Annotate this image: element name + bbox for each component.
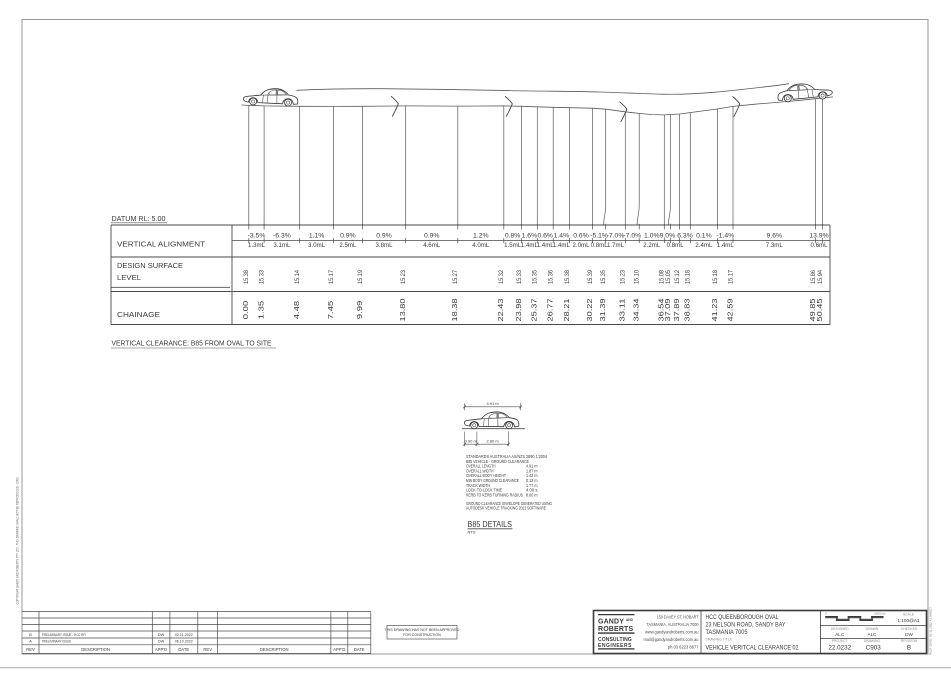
svg-text:2.4mL: 2.4mL (695, 242, 712, 249)
svg-text:CHECKED: CHECKED (901, 627, 918, 631)
svg-text:38.83: 38.83 (683, 298, 692, 321)
svg-text:1.5mL: 1.5mL (504, 242, 521, 249)
svg-text:DRAWN: DRAWN (866, 627, 879, 631)
svg-text:41.23: 41.23 (710, 298, 719, 321)
svg-text:DESIGNED: DESIGNED (831, 627, 849, 631)
svg-text:0.9%: 0.9% (424, 233, 440, 240)
svg-text:1.0%: 1.0% (644, 233, 660, 240)
svg-text:22.0232: 22.0232 (828, 644, 851, 651)
svg-text:ENGINEERS: ENGINEERS (598, 643, 632, 649)
svg-text:0.1%: 0.1% (696, 233, 712, 240)
svg-text:31.39: 31.39 (598, 299, 607, 322)
svg-text:15.05: 15.05 (665, 270, 672, 284)
svg-text:15.35: 15.35 (532, 270, 539, 284)
svg-text:CONSULTING: CONSULTING (598, 637, 632, 643)
svg-text:THIS DRAWING HAS NOT BEEN APPR: THIS DRAWING HAS NOT BEEN APPROVED (385, 628, 460, 632)
svg-text:www.gandyandroberts.com.au: www.gandyandroberts.com.au (645, 629, 699, 634)
svg-text:VERTICAL ALIGNMENT: VERTICAL ALIGNMENT (117, 242, 206, 249)
svg-text:-1.4%: -1.4% (716, 233, 734, 240)
svg-text:15.33: 15.33 (516, 270, 523, 284)
svg-text:15.23: 15.23 (620, 270, 627, 284)
svg-text:37.89: 37.89 (672, 299, 681, 322)
svg-text:0.9%: 0.9% (376, 233, 392, 240)
svg-text:15.32: 15.32 (498, 270, 505, 284)
svg-text:0.6mL: 0.6mL (811, 242, 828, 249)
svg-text:8.00 m: 8.00 m (526, 492, 538, 497)
svg-text:NTS: NTS (468, 529, 476, 534)
svg-text:0.8%: 0.8% (505, 233, 521, 240)
svg-text:B85 DETAILS: B85 DETAILS (468, 520, 513, 529)
svg-text:1.3mL: 1.3mL (248, 242, 265, 249)
svg-text:2.0mL: 2.0mL (573, 242, 590, 249)
svg-text:TASMANIA, AUSTRALIA 7000: TASMANIA, AUSTRALIA 7000 (647, 622, 700, 627)
svg-text:FOR CONSTRUCTION: FOR CONSTRUCTION (403, 633, 441, 637)
svg-text:5000mm: 5000mm (874, 612, 886, 616)
svg-text:26.77: 26.77 (546, 298, 555, 321)
svg-text:PLOT DATE: 02.11.2022 A1 SHEE: PLOT DATE: 02.11.2022 A1 SHEET (929, 607, 933, 655)
svg-text:30.22: 30.22 (585, 299, 594, 322)
svg-text:15.19: 15.19 (357, 270, 364, 284)
svg-text:DESCRIPTION: DESCRIPTION (260, 647, 289, 652)
svg-text:PRELIMINARY ISSUE - HCC RFI: PRELIMINARY ISSUE - HCC RFI (42, 633, 86, 637)
svg-text:15.38: 15.38 (243, 270, 250, 284)
svg-text:ROBERTS: ROBERTS (598, 626, 633, 633)
svg-text:DATE: DATE (178, 647, 189, 652)
svg-text:2.5mL: 2.5mL (339, 242, 356, 249)
svg-text:15.17: 15.17 (727, 270, 734, 284)
svg-text:REV: REV (26, 647, 35, 652)
svg-text:1.7mL: 1.7mL (607, 242, 624, 249)
svg-text:4.91 m: 4.91 m (486, 401, 499, 406)
svg-text:1.4%: 1.4% (554, 233, 570, 240)
svg-text:6.3%: 6.3% (677, 233, 693, 240)
svg-text:VERTICAL CLEARANCE: B85 FROM O: VERTICAL CLEARANCE: B85 FROM OVAL TO SIT… (112, 339, 272, 348)
svg-text:1.4mL: 1.4mL (521, 242, 538, 249)
svg-text:06.10.2022: 06.10.2022 (175, 640, 193, 644)
svg-text:1.4mL: 1.4mL (553, 242, 570, 249)
svg-text:GANDY: GANDY (598, 618, 624, 625)
svg-text:ph 03 6223 8877: ph 03 6223 8877 (668, 644, 699, 649)
svg-text:15.10: 15.10 (634, 270, 641, 284)
svg-text:1.6%: 1.6% (522, 233, 538, 240)
svg-text:-7.0%: -7.0% (623, 233, 641, 240)
svg-text:1.2%: 1.2% (473, 233, 489, 240)
svg-text:9.99: 9.99 (355, 301, 364, 319)
svg-text:LEVEL: LEVEL (117, 275, 141, 282)
svg-text:DATUM RL: 5.00: DATUM RL: 5.00 (112, 216, 166, 223)
svg-text:DW: DW (158, 633, 165, 637)
svg-text:APP'D: APP'D (155, 647, 167, 652)
svg-text:4.6mL: 4.6mL (423, 242, 440, 249)
svg-text:159 DAVEY ST, HOBART: 159 DAVEY ST, HOBART (657, 614, 699, 619)
svg-text:2.80 m: 2.80 m (486, 439, 499, 444)
svg-text:1.1%: 1.1% (309, 233, 325, 240)
svg-text:2.2mL: 2.2mL (643, 242, 660, 249)
svg-text:mail@gandyandroberts.com.au: mail@gandyandroberts.com.au (644, 637, 700, 642)
svg-text:ALC: ALC (868, 632, 878, 637)
svg-text:APP'D: APP'D (333, 647, 345, 652)
svg-text:15.27: 15.27 (452, 270, 459, 284)
svg-text:SCALE: SCALE (903, 612, 915, 616)
svg-text:0.00: 0.00 (241, 301, 250, 319)
svg-text:15.36: 15.36 (548, 270, 555, 284)
svg-text:28.21: 28.21 (562, 299, 571, 322)
svg-text:AUTODESK VEHICLE TRACKING 2021: AUTODESK VEHICLE TRACKING 2021 SOFTWARE (466, 506, 546, 511)
svg-text:DESIGN SURFACE: DESIGN SURFACE (117, 263, 183, 270)
svg-text:15.23: 15.23 (400, 270, 407, 284)
svg-text:13.80: 13.80 (398, 299, 407, 322)
svg-text:23 NELSON ROAD, SANDY BAY: 23 NELSON ROAD, SANDY BAY (706, 622, 786, 629)
svg-text:22.43: 22.43 (496, 299, 505, 322)
svg-text:-5.1%: -5.1% (590, 233, 608, 240)
svg-text:50.45: 50.45 (815, 299, 824, 322)
svg-text:18.38: 18.38 (450, 298, 459, 321)
svg-text:23.98: 23.98 (514, 298, 523, 321)
svg-text:15.39: 15.39 (587, 270, 594, 284)
svg-text:B: B (907, 644, 911, 651)
svg-text:C903: C903 (866, 644, 882, 651)
svg-text:PROJECT: PROJECT (832, 639, 848, 643)
svg-text:15.38: 15.38 (564, 270, 571, 284)
svg-text:3.0mL: 3.0mL (308, 242, 325, 249)
svg-text:15.35: 15.35 (600, 270, 607, 284)
svg-text:7.45: 7.45 (326, 301, 335, 319)
svg-text:ALC: ALC (835, 632, 845, 637)
svg-text:34.34: 34.34 (632, 299, 641, 322)
svg-text:DRAWING TITLE: DRAWING TITLE (706, 638, 733, 642)
svg-text:-7.0%: -7.0% (607, 233, 625, 240)
svg-text:0.6%: 0.6% (573, 233, 589, 240)
svg-text:COPYRIGHT GANDY AND ROBERTS PT: COPYRIGHT GANDY AND ROBERTS PTY LTD - TH… (16, 477, 20, 604)
svg-text:4.48: 4.48 (292, 301, 301, 319)
svg-text:KERB TO KERB TURNING RADIUS: KERB TO KERB TURNING RADIUS (466, 492, 523, 497)
svg-text:13.9%: 13.9% (809, 233, 828, 240)
svg-text:PRELIMINARY ISSUE: PRELIMINARY ISSUE (42, 640, 71, 644)
svg-text:25.37: 25.37 (530, 298, 539, 321)
svg-text:15.33: 15.33 (259, 270, 266, 284)
svg-text:TASMANIA 7005: TASMANIA 7005 (706, 629, 749, 636)
svg-text:DW: DW (905, 632, 913, 637)
svg-text:B: B (29, 633, 32, 637)
svg-text:VEHICLE VERITCAL CLEARANCE 02: VEHICLE VERITCAL CLEARANCE 02 (706, 644, 800, 651)
svg-text:AND: AND (626, 618, 634, 622)
svg-text:02.11.2022: 02.11.2022 (175, 633, 193, 637)
svg-text:HCC QUEENBOROUGH OVAL: HCC QUEENBOROUGH OVAL (706, 614, 780, 621)
svg-text:37.09: 37.09 (663, 299, 672, 322)
svg-text:0.90 m: 0.90 m (465, 439, 478, 444)
svg-text:15.12: 15.12 (674, 270, 681, 284)
svg-text:4.0mL: 4.0mL (472, 242, 489, 249)
svg-text:1.4mL: 1.4mL (537, 242, 554, 249)
svg-text:-3.5%: -3.5% (248, 233, 266, 240)
svg-text:42.59: 42.59 (725, 299, 734, 322)
svg-text:15.18: 15.18 (685, 270, 692, 284)
svg-text:15.17: 15.17 (328, 270, 335, 284)
svg-text:DATE: DATE (354, 647, 365, 652)
svg-text:1:100@A1: 1:100@A1 (897, 618, 920, 623)
svg-text:3.8mL: 3.8mL (376, 242, 393, 249)
svg-text:7.3mL: 7.3mL (766, 242, 783, 249)
svg-text:3.1mL: 3.1mL (273, 242, 290, 249)
svg-text:9.0%: 9.0% (660, 233, 676, 240)
svg-text:REVISION: REVISION (901, 639, 918, 643)
svg-text:0.6%: 0.6% (537, 233, 553, 240)
svg-text:REV: REV (203, 647, 212, 652)
svg-text:CHAINAGE: CHAINAGE (117, 312, 160, 319)
svg-text:-6.3%: -6.3% (273, 233, 291, 240)
svg-text:15.18: 15.18 (712, 270, 719, 284)
svg-text:1.4mL: 1.4mL (717, 242, 734, 249)
svg-text:15.14: 15.14 (294, 270, 301, 284)
svg-text:DESCRIPTION: DESCRIPTION (81, 647, 110, 652)
svg-text:0.8mL: 0.8mL (667, 242, 684, 249)
svg-text:1.35: 1.35 (257, 301, 266, 319)
svg-text:15.94: 15.94 (817, 270, 824, 284)
svg-text:DW: DW (158, 640, 165, 644)
svg-text:0.9%: 0.9% (340, 233, 356, 240)
svg-text:9.6%: 9.6% (767, 233, 783, 240)
svg-text:0.8mL: 0.8mL (591, 242, 608, 249)
svg-text:A: A (29, 640, 32, 644)
svg-text:33.11: 33.11 (618, 298, 627, 321)
svg-text:DRAWING: DRAWING (864, 639, 881, 643)
